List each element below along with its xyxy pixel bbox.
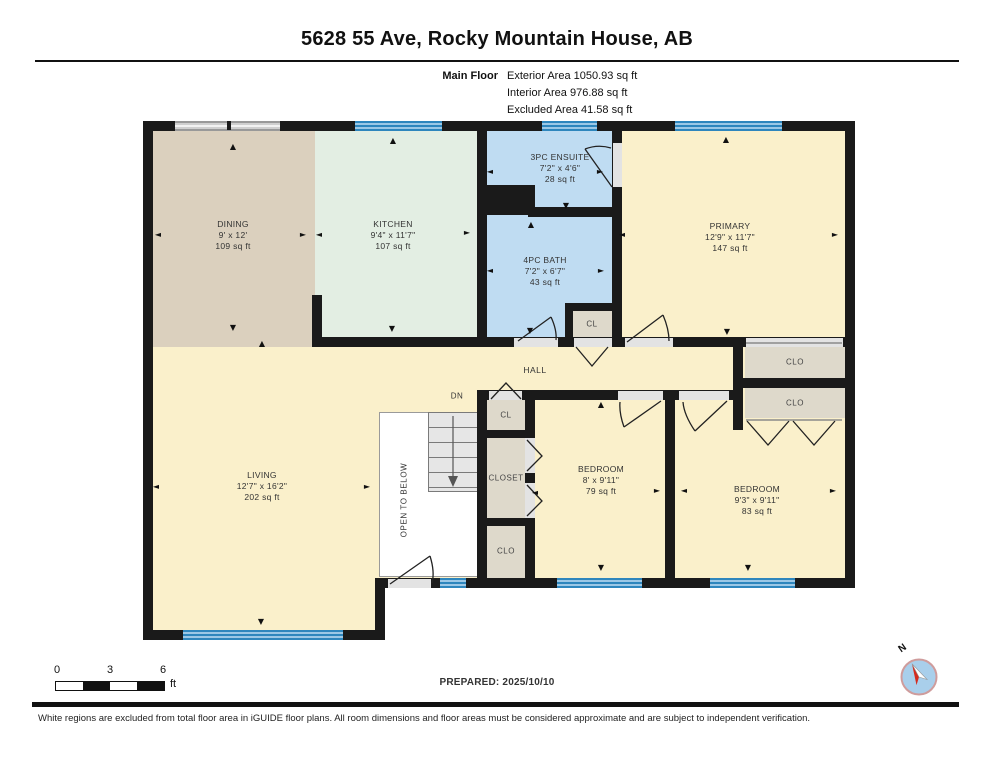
closet-label-clo-entry: CLO: [497, 547, 515, 556]
measure-arrow-icon: ▲: [528, 221, 534, 229]
measure-arrow-icon: ▲: [723, 136, 729, 144]
window-primary: [675, 121, 782, 131]
measure-arrow-icon: ►: [654, 487, 660, 495]
wall: [375, 578, 385, 640]
measure-arrow-icon: ►: [464, 229, 470, 237]
room-label-kitchen: KITCHEN 9'4" x 11'7" 107 sq ft: [371, 219, 416, 253]
room-label-bedroom2: BEDROOM 9'3" x 9'11" 83 sq ft: [734, 484, 780, 518]
measure-arrow-icon: ►: [830, 487, 836, 495]
measure-arrow-icon: ◄: [316, 231, 322, 239]
measure-arrow-icon: ◄: [681, 487, 687, 495]
window-living: [183, 630, 343, 640]
measure-arrow-icon: ▼: [389, 325, 395, 333]
room-label-hall: HALL: [523, 365, 546, 375]
scale-segment: [56, 682, 83, 690]
door-threshold: [489, 391, 522, 400]
prepared-date: PREPARED: 2025/10/10: [380, 677, 614, 688]
scale-tick-0: 0: [54, 664, 60, 676]
window-tick: [227, 121, 231, 130]
open-to-below-label: OPEN TO BELOW: [400, 463, 409, 538]
room-dims: 12'7" x 16'2": [237, 481, 288, 491]
scale-unit: ft: [170, 678, 176, 690]
measure-arrow-icon: ▼: [724, 328, 730, 336]
door-threshold: [679, 391, 729, 400]
window-entry: [440, 578, 466, 588]
room-label-bedroom1: BEDROOM 8' x 9'11" 79 sq ft: [578, 464, 624, 498]
window-bedroom2: [710, 578, 795, 588]
room-label-bath: 4PC BATH 7'2" x 6'7" 43 sq ft: [523, 255, 566, 289]
wall: [733, 378, 855, 388]
compass-icon: [896, 656, 944, 700]
measure-arrow-icon: ◄: [487, 168, 493, 176]
room-area: 202 sq ft: [244, 493, 279, 503]
page-title: 5628 55 Ave, Rocky Mountain House, AB: [0, 28, 994, 51]
measure-arrow-icon: ▼: [745, 564, 751, 572]
room-dims: 9' x 12': [219, 230, 248, 240]
room-name: DINING: [217, 219, 249, 229]
wall: [143, 121, 153, 640]
closet-label-clo-lower: CLO: [786, 399, 804, 408]
room-dims: 9'4" x 11'7": [371, 230, 416, 240]
measure-arrow-icon: ►: [300, 231, 306, 239]
measure-arrow-icon: ◄: [155, 231, 161, 239]
room-area: 28 sq ft: [545, 175, 575, 185]
wall: [477, 121, 487, 347]
floor-label: Main Floor: [380, 70, 498, 82]
room-label-ensuite: 3PC ENSUITE 7'2" x 4'6" 28 sq ft: [530, 152, 589, 186]
exterior-area-stat: Exterior Area 1050.93 sq ft: [507, 70, 747, 82]
compass-north-label: N: [896, 642, 908, 655]
measure-arrow-icon: ►: [364, 483, 370, 491]
measure-arrow-icon: ▼: [563, 202, 569, 210]
closet-label-cl-bath: CL: [586, 320, 597, 329]
door-threshold: [613, 143, 622, 187]
room-label-dining: DINING 9' x 12' 109 sq ft: [215, 219, 250, 253]
measure-arrow-icon: ◄: [619, 231, 625, 239]
wall: [477, 185, 535, 215]
room-name: BEDROOM: [578, 464, 624, 474]
room-label-living: LIVING 12'7" x 16'2" 202 sq ft: [237, 470, 288, 504]
room-name: 3PC ENSUITE: [530, 152, 589, 162]
room-name: KITCHEN: [373, 219, 412, 229]
scale-segment: [83, 682, 110, 690]
door-threshold: [525, 438, 535, 473]
measure-arrow-icon: ◄: [532, 489, 538, 497]
scale-tick-3: 3: [107, 664, 113, 676]
window-kitchen: [355, 121, 442, 131]
room-area: 147 sq ft: [712, 244, 747, 254]
room-area: 109 sq ft: [215, 242, 250, 252]
room-label-primary: PRIMARY 12'9" x 11'7" 147 sq ft: [705, 221, 755, 255]
closet-label-cl-hall: CL: [500, 411, 511, 420]
window-ensuite: [542, 121, 597, 131]
room-area: 107 sq ft: [375, 242, 410, 252]
measure-arrow-icon: ▼: [258, 618, 264, 626]
measure-arrow-icon: ▲: [230, 143, 236, 151]
disclaimer-text: White regions are excluded from total fl…: [38, 713, 968, 724]
room-area: 79 sq ft: [586, 487, 616, 497]
measure-arrow-icon: ▲: [259, 340, 265, 348]
stairs-dn-label: DN: [451, 392, 464, 401]
wall: [845, 121, 855, 588]
door-threshold: [574, 338, 612, 347]
wall: [565, 303, 612, 311]
footer-divider: [32, 702, 959, 707]
measure-arrow-icon: ►: [832, 231, 838, 239]
header-divider: [35, 60, 959, 62]
measure-arrow-icon: ►: [597, 168, 603, 176]
room-name: LIVING: [247, 470, 277, 480]
scale-segment: [137, 682, 164, 690]
room-area: 83 sq ft: [742, 507, 772, 517]
wall: [312, 295, 322, 337]
measure-arrow-icon: ◄: [487, 267, 493, 275]
room-dims: 9'3" x 9'11": [735, 495, 780, 505]
wall: [665, 390, 675, 588]
scale-segment: [110, 682, 137, 690]
room-dims: 12'9" x 11'7": [705, 232, 755, 242]
wall: [477, 518, 535, 526]
excluded-area-stat: Excluded Area 41.58 sq ft: [507, 104, 747, 116]
measure-arrow-icon: ▲: [390, 137, 396, 145]
room-name: PRIMARY: [710, 221, 751, 231]
door-threshold: [746, 338, 843, 347]
door-threshold: [514, 338, 558, 347]
room-name: BEDROOM: [734, 484, 780, 494]
measure-arrow-icon: ▼: [598, 564, 604, 572]
interior-area-stat: Interior Area 976.88 sq ft: [507, 87, 747, 99]
staircase: [428, 412, 482, 492]
room-name: 4PC BATH: [523, 255, 566, 265]
door-threshold: [625, 338, 673, 347]
wall: [477, 390, 487, 578]
measure-arrow-icon: ▼: [230, 324, 236, 332]
measure-arrow-icon: ▼: [527, 327, 533, 335]
room-dims: 7'2" x 6'7": [525, 266, 565, 276]
door-threshold: [618, 391, 663, 400]
scale-tick-6: 6: [160, 664, 166, 676]
floor-plan-page: { "header": { "title": "5628 55 Ave, Roc…: [0, 0, 994, 768]
measure-arrow-icon: ◄: [153, 483, 159, 491]
wall: [528, 207, 617, 217]
wall: [477, 430, 535, 438]
room-area: 43 sq ft: [530, 278, 560, 288]
door-threshold: [388, 579, 431, 588]
measure-arrow-icon: ►: [598, 267, 604, 275]
window-bedroom1: [557, 578, 642, 588]
room-dims: 8' x 9'11": [583, 475, 620, 485]
measure-arrow-icon: ▲: [598, 401, 604, 409]
closet-label-closet: CLOSET: [488, 474, 523, 483]
scale-bar: [55, 681, 165, 691]
room-dims: 7'2" x 4'6": [540, 163, 580, 173]
closet-label-clo-upper: CLO: [786, 358, 804, 367]
